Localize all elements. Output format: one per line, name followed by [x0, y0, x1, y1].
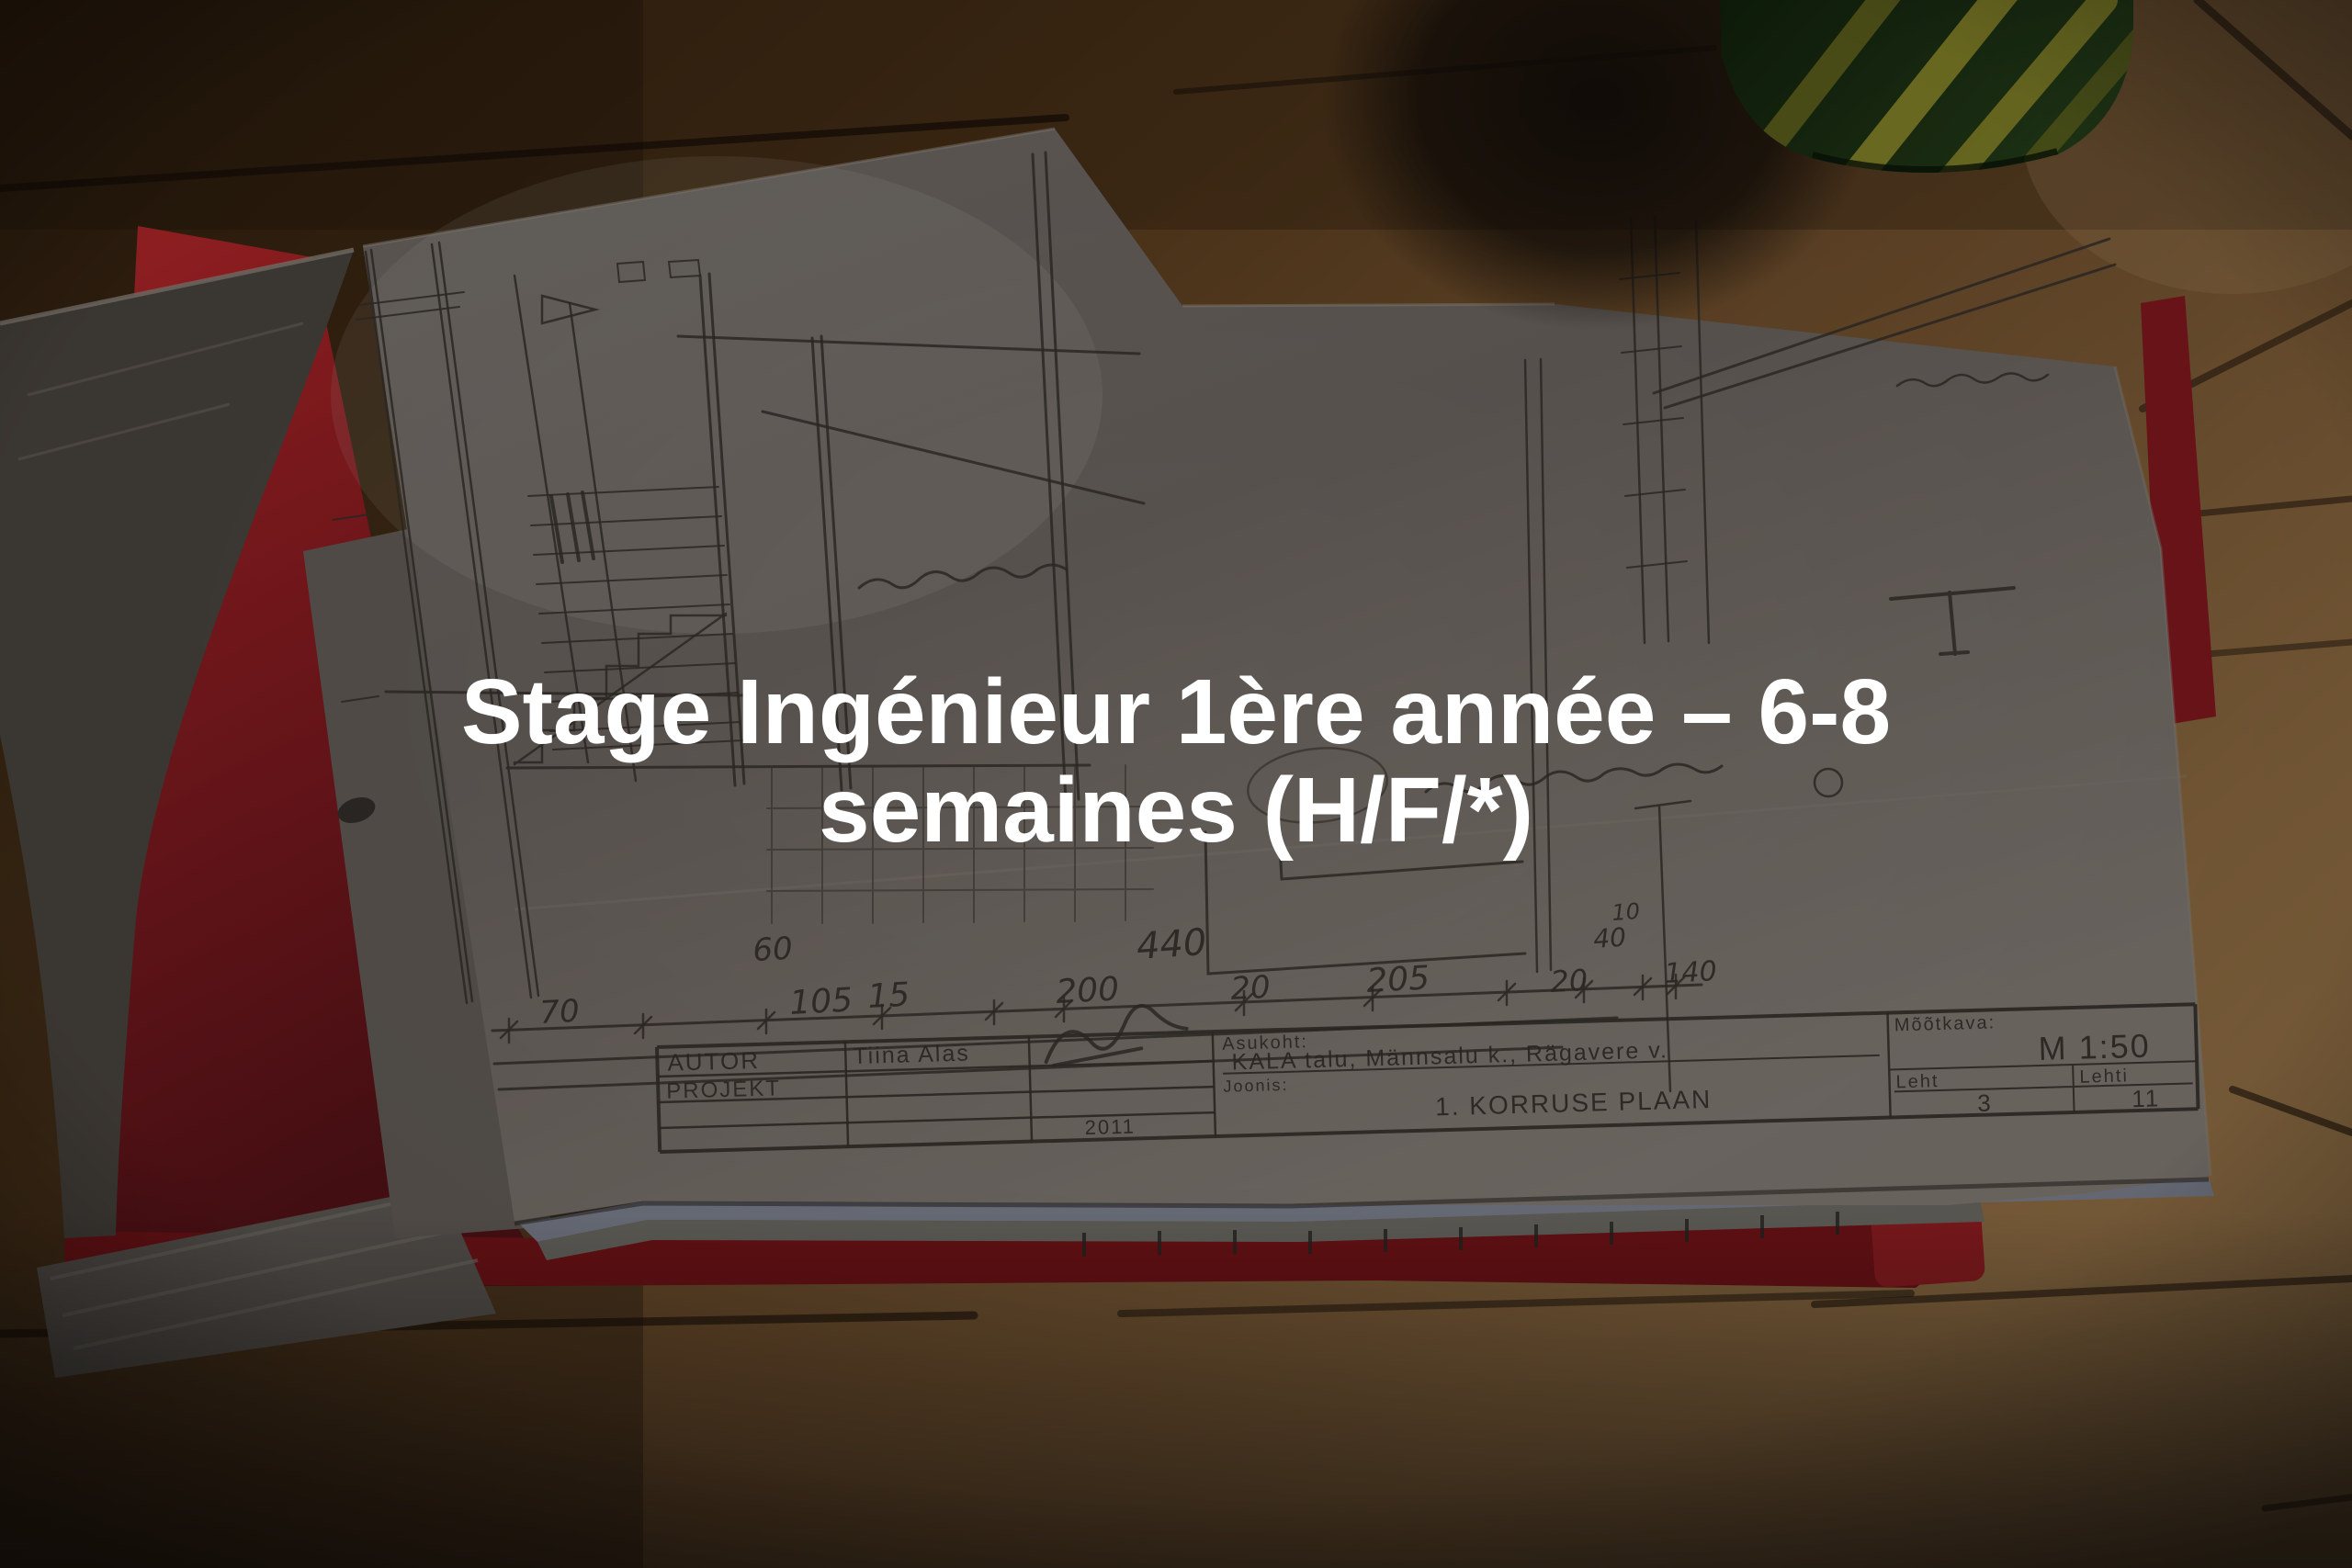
title-line-2: semaines (H/F/*): [0, 761, 2352, 860]
hero-banner: 70 60 105 15 200 440 20 205 20 40 10 140: [0, 0, 2352, 1568]
title-line-1: Stage Ingénieur 1ère année – 6-8: [0, 663, 2352, 761]
page-title: Stage Ingénieur 1ère année – 6-8 semaine…: [0, 663, 2352, 860]
